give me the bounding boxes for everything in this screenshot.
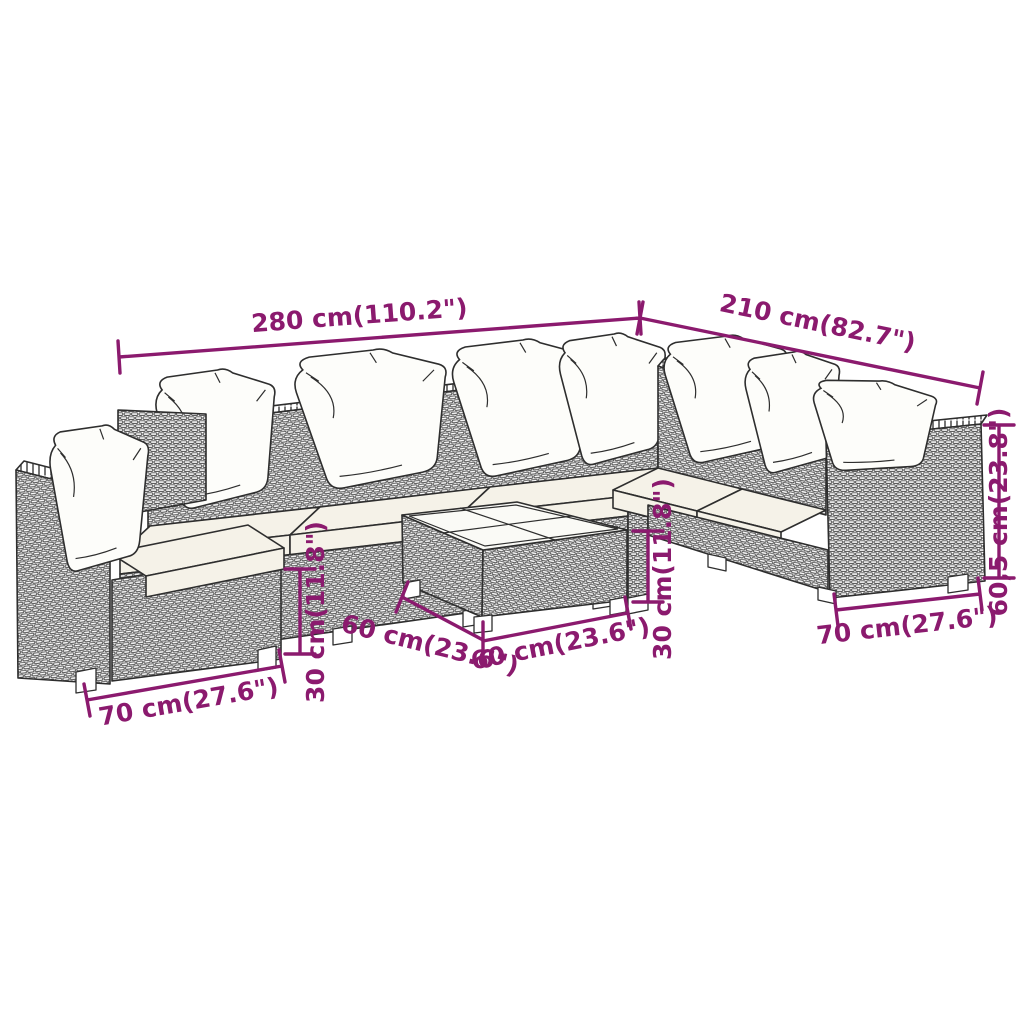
dimension-label-table-side-right: 60 cm(23.6") [468,612,652,676]
sofa-foot [948,574,968,593]
dimension-back-height: 60,5 cm(23.8") [984,408,1014,617]
dimension-label-seat-height-center: 30 cm(11.8") [648,478,677,660]
diagram-canvas: 280 cm(110.2") 210 cm(82.7") 60,5 cm(23.… [0,0,1024,1024]
dimension-label-sofa-long-side: 280 cm(110.2") [250,293,468,338]
dimension-label-back-height: 60,5 cm(23.8") [984,408,1013,617]
dimension-label-seat-height-left: 30 cm(11.8") [301,521,330,703]
dimension-diagram: 280 cm(110.2") 210 cm(82.7") 60,5 cm(23.… [0,0,1024,1024]
sofa-foot [628,594,648,614]
